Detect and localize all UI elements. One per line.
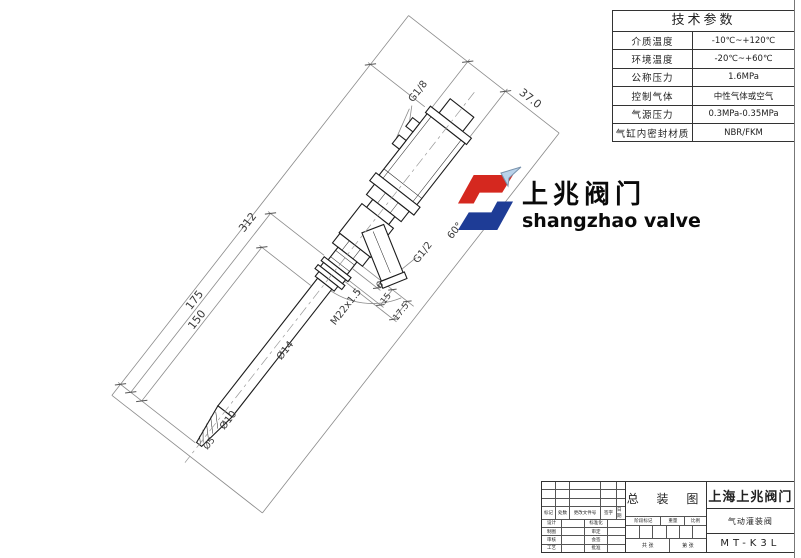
sheet-border-line [794, 0, 795, 558]
dim-label-312: 312 [236, 210, 259, 235]
table-row: 介质温度 -10℃~+120℃ [613, 32, 794, 50]
dim-label-17-5: 17.5 [391, 301, 411, 323]
title-block-right: 上海上兆阀门 气动灌装阀 MT-K3L [707, 482, 794, 552]
tech-params-title: 技术参数 [613, 11, 794, 32]
dim-label-g12: G1/2 [411, 240, 434, 266]
table-row: 气源压力 0.3MPa-0.35MPa [613, 106, 794, 124]
stage-mark-boxes [626, 526, 705, 539]
table-row: 控制气体 中性气体或空气 [613, 87, 794, 105]
param-label: 公称压力 [613, 69, 693, 86]
param-label: 环境温度 [613, 50, 693, 67]
param-label: 介质温度 [613, 32, 693, 49]
param-value: -10℃~+120℃ [693, 32, 794, 49]
param-value: -20℃~+60℃ [693, 50, 794, 67]
dim-label-150: 150 [185, 307, 208, 332]
signature-row: 设计 标准化 [542, 520, 625, 528]
param-label: 气缸内密封材质 [613, 124, 693, 141]
product-name: 气动灌装阀 [707, 509, 794, 534]
title-block-revision-area: 标记 处数 更改文件号 签字 日期 设计 标准化 制图 审定 审核 会签 工艺 [542, 482, 626, 552]
param-label: 气源压力 [613, 106, 693, 123]
signature-row: 制图 审定 [542, 528, 625, 536]
param-value: 中性气体或空气 [693, 87, 794, 104]
signature-row: 工艺 批准 [542, 545, 625, 552]
dim-label-370: 37.0 [517, 86, 544, 111]
title-block: 标记 处数 更改文件号 签字 日期 设计 标准化 制图 审定 审核 会签 工艺 [541, 481, 795, 553]
title-block-middle: 总 装 图 阶段标记 重量 比例 共 张 第 张 [626, 482, 706, 552]
drawing-type-label: 总 装 图 [626, 482, 705, 517]
dim-label-g18: G1/8 [407, 79, 430, 105]
cursor-icon [500, 166, 524, 190]
sheet-count-row: 共 张 第 张 [626, 539, 705, 552]
param-value: 1.6MPa [693, 69, 794, 86]
table-row: 公称压力 1.6MPa [613, 69, 794, 87]
model-number: MT-K3L [707, 534, 794, 552]
table-row: 气缸内密封材质 NBR/FKM [613, 124, 794, 141]
param-label: 控制气体 [613, 87, 693, 104]
param-value: NBR/FKM [693, 124, 794, 141]
table-row: 环境温度 -20℃~+60℃ [613, 50, 794, 68]
logo: 上兆阀门 shangzhao valve [456, 172, 701, 233]
centerline [185, 92, 474, 462]
logo-name-cn: 上兆阀门 [522, 182, 701, 208]
revision-header-row: 标记 处数 更改文件号 签字 日期 [542, 507, 625, 520]
dim-label-175: 175 [183, 288, 206, 313]
param-value: 0.3MPa-0.35MPa [693, 106, 794, 123]
signature-row: 审核 会签 [542, 536, 625, 544]
company-name: 上海上兆阀门 [707, 482, 794, 509]
logo-name-en: shangzhao valve [522, 212, 701, 231]
stage-row: 阶段标记 重量 比例 [626, 517, 705, 526]
tech-params-table: 技术参数 介质温度 -10℃~+120℃ 环境温度 -20℃~+60℃ 公称压力… [612, 10, 795, 142]
